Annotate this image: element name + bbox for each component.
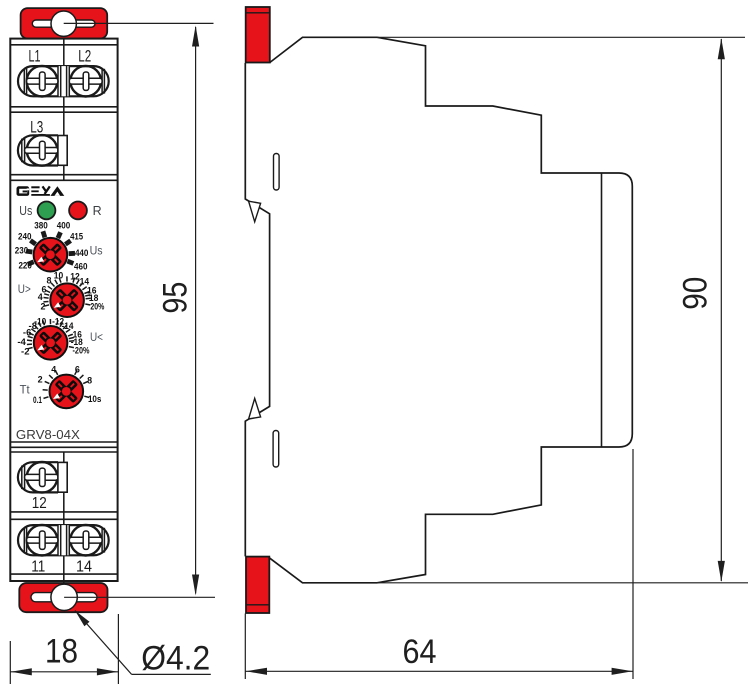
svg-text:GRV8-04X: GRV8-04X [16, 427, 80, 442]
svg-text:95: 95 [156, 282, 194, 314]
svg-text:Tt: Tt [20, 382, 31, 396]
svg-text:U>: U> [18, 282, 31, 296]
svg-text:240: 240 [18, 232, 32, 243]
svg-text:12: 12 [32, 495, 47, 512]
svg-text:L2: L2 [78, 47, 91, 66]
svg-text:Us: Us [90, 244, 103, 258]
svg-text:2: 2 [41, 302, 46, 313]
svg-text:14: 14 [76, 559, 92, 576]
svg-text:18: 18 [45, 632, 78, 670]
svg-text:U<: U< [90, 330, 103, 344]
svg-text:12: 12 [70, 272, 80, 283]
svg-text:2: 2 [38, 374, 43, 385]
svg-text:11: 11 [31, 559, 45, 576]
svg-text:8: 8 [47, 276, 52, 287]
svg-text:8: 8 [87, 375, 92, 386]
svg-text:10: 10 [54, 271, 64, 282]
svg-text:-2: -2 [21, 346, 30, 357]
svg-text:Ø4.2: Ø4.2 [141, 640, 210, 678]
svg-text:230: 230 [15, 246, 29, 257]
svg-text:440: 440 [75, 248, 89, 259]
svg-text:90: 90 [676, 277, 714, 310]
svg-text:10s: 10s [88, 394, 102, 405]
svg-text:0.1: 0.1 [33, 395, 42, 406]
svg-text:220: 220 [18, 261, 32, 272]
svg-text:R: R [93, 204, 102, 218]
svg-text:-20%: -20% [73, 345, 90, 356]
svg-text:4: 4 [51, 365, 57, 376]
svg-text:415: 415 [70, 232, 84, 243]
svg-text:380: 380 [34, 221, 48, 232]
svg-text:64: 64 [403, 633, 437, 671]
svg-text:Us: Us [19, 204, 32, 218]
svg-text:L3: L3 [30, 118, 43, 137]
svg-text:20%: 20% [90, 302, 104, 313]
svg-text:L1: L1 [29, 47, 41, 66]
svg-text:400: 400 [57, 221, 71, 232]
svg-text:6: 6 [75, 365, 80, 376]
